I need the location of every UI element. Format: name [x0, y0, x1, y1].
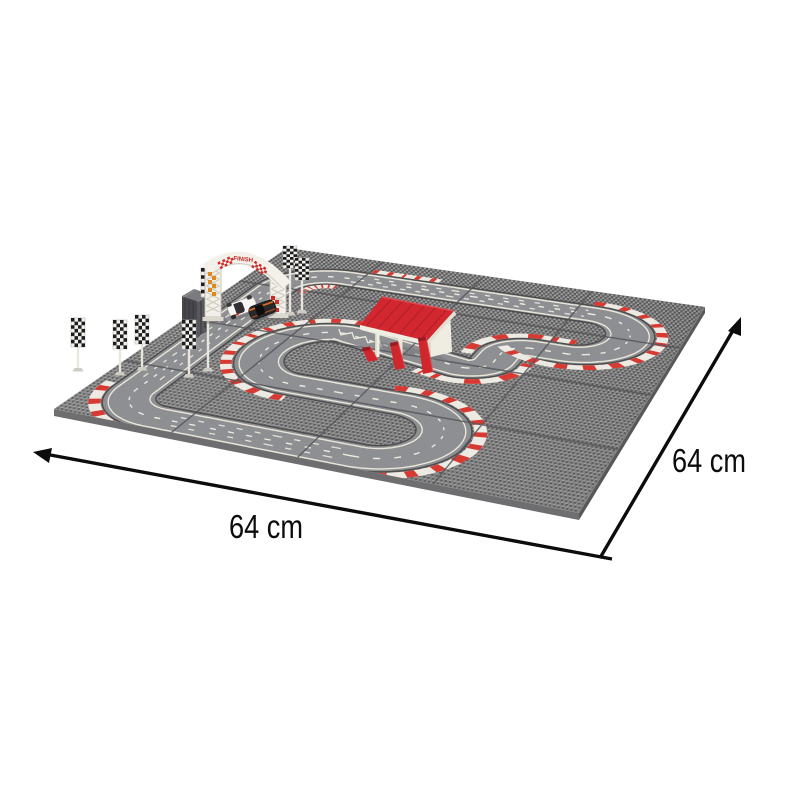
svg-text:64 cm: 64 cm — [672, 442, 746, 479]
svg-text:64 cm: 64 cm — [229, 508, 303, 545]
